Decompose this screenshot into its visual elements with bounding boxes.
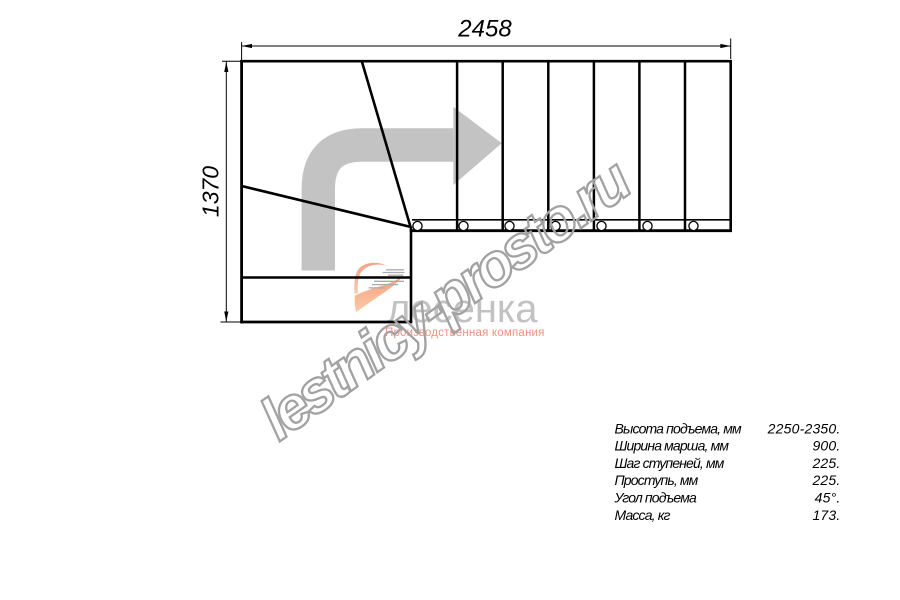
svg-text:900.: 900. xyxy=(812,438,840,454)
svg-text:2250-2350.: 2250-2350. xyxy=(767,420,841,436)
svg-text:Проступь, мм: Проступь, мм xyxy=(615,472,699,488)
svg-text:Ширина марша, мм: Ширина марша, мм xyxy=(615,438,730,454)
svg-text:225.: 225. xyxy=(811,455,840,471)
svg-text:Высота подъема, мм: Высота подъема, мм xyxy=(615,420,742,436)
svg-text:Масса, кг: Масса, кг xyxy=(615,507,671,523)
svg-text:Угол подъема: Угол подъема xyxy=(614,490,697,506)
svg-text:173.: 173. xyxy=(812,507,840,523)
svg-text:2458: 2458 xyxy=(457,16,512,43)
svg-text:45°.: 45°. xyxy=(815,490,841,506)
svg-text:225.: 225. xyxy=(811,472,840,488)
svg-text:1370: 1370 xyxy=(198,166,224,217)
svg-text:Шаг ступеней, мм: Шаг ступеней, мм xyxy=(615,455,725,471)
